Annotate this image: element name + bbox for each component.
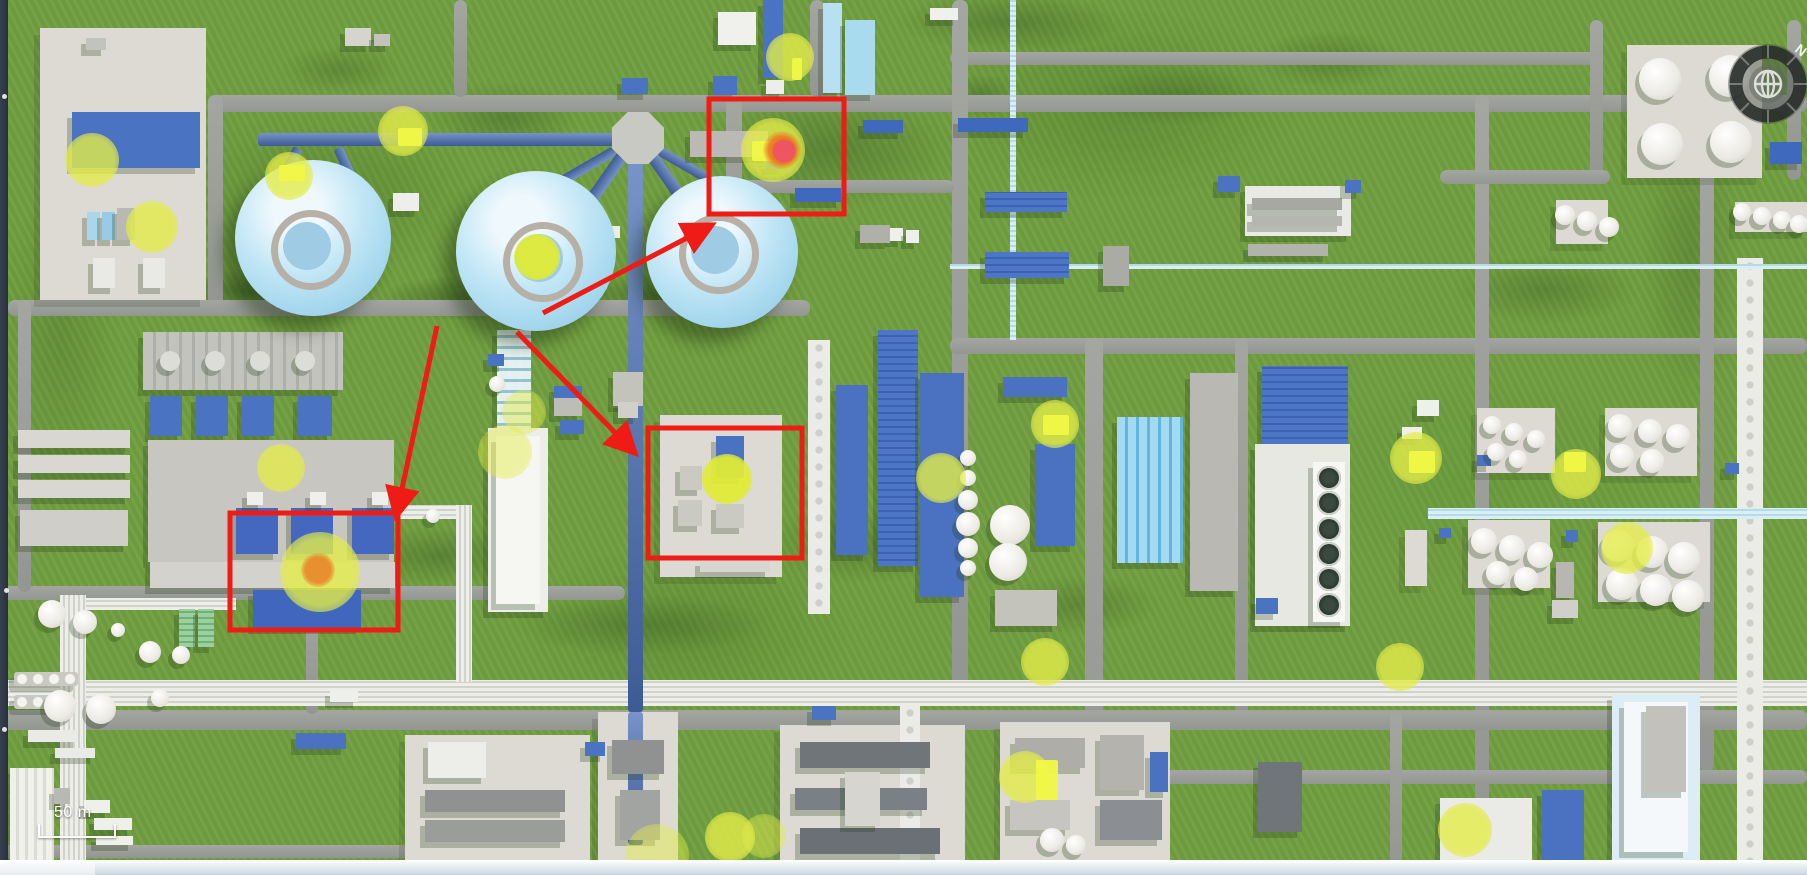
storage-tank — [1668, 542, 1700, 574]
storage-tank — [1555, 205, 1575, 225]
particle-dot — [2, 727, 7, 732]
building — [150, 396, 182, 436]
road — [1590, 20, 1603, 182]
building — [863, 120, 903, 133]
left-edge-panel — [0, 0, 8, 875]
storage-tank — [1066, 835, 1086, 855]
building — [247, 492, 263, 505]
storage-tank — [958, 538, 978, 558]
storage-tank — [1483, 416, 1501, 434]
building — [985, 192, 1067, 212]
storage-tank — [250, 351, 270, 371]
storage-tank — [1753, 207, 1771, 225]
event-marker[interactable] — [766, 33, 814, 81]
storage-tank — [160, 351, 180, 371]
building — [87, 212, 100, 240]
building — [554, 398, 582, 416]
pipe — [258, 133, 638, 146]
building — [18, 480, 130, 498]
building — [860, 225, 890, 243]
storage-tank — [1666, 424, 1690, 448]
window-bottom-bar — [0, 860, 1807, 875]
highlighted-asset — [1564, 452, 1586, 472]
pipe-rack — [456, 505, 472, 682]
building — [766, 80, 784, 94]
event-marker[interactable] — [742, 814, 786, 858]
building — [1556, 562, 1574, 598]
building — [845, 772, 880, 826]
building — [1566, 530, 1578, 542]
storage-tank — [205, 351, 225, 371]
particle-dot — [4, 588, 9, 593]
storage-tank — [73, 610, 97, 634]
event-marker[interactable] — [126, 201, 178, 253]
building — [1770, 142, 1802, 164]
building — [716, 504, 744, 528]
app-window: 50 m N — [0, 0, 1807, 875]
storage-tank — [1773, 211, 1791, 229]
building — [1150, 752, 1168, 792]
pipe — [628, 160, 643, 712]
highlighted-asset — [398, 128, 422, 146]
storage-tank — [489, 376, 505, 392]
pipe-rack — [0, 680, 1807, 706]
storage-tank — [1638, 419, 1662, 443]
building — [1417, 400, 1439, 416]
road — [208, 95, 1807, 112]
clarifier — [1117, 417, 1183, 563]
highlighted-asset — [1043, 415, 1069, 435]
event-marker[interactable] — [1438, 803, 1492, 857]
storage-tank — [1040, 828, 1064, 852]
storage-tank — [1527, 542, 1553, 568]
building — [678, 500, 702, 526]
storage-tank — [1509, 450, 1527, 468]
building — [1552, 600, 1578, 618]
storage-tank — [139, 641, 161, 663]
storage-tank — [1487, 443, 1505, 461]
event-marker[interactable] — [916, 453, 966, 503]
building — [585, 742, 605, 756]
storage-tank — [1790, 215, 1807, 233]
event-marker[interactable] — [702, 454, 752, 504]
building — [612, 740, 664, 774]
storage-tank — [1672, 580, 1704, 612]
storage-tank — [1610, 444, 1634, 468]
road — [1475, 95, 1489, 875]
building — [800, 742, 930, 768]
building — [1100, 800, 1162, 840]
event-marker[interactable] — [1021, 638, 1069, 686]
building — [1646, 706, 1686, 792]
building — [198, 609, 214, 647]
storage-tank — [1640, 449, 1664, 473]
fan-icon — [1317, 466, 1341, 490]
building — [196, 396, 228, 436]
building — [700, 560, 770, 572]
building — [14, 672, 78, 686]
building — [18, 430, 130, 448]
storage-tank — [1733, 203, 1751, 221]
event-marker[interactable] — [514, 234, 560, 280]
building — [236, 508, 278, 554]
storage-tank — [295, 351, 315, 371]
building — [330, 690, 358, 702]
event-marker[interactable] — [478, 425, 532, 479]
map-scale-bar: 50 m — [38, 804, 158, 838]
storage-tank — [111, 623, 125, 637]
building — [425, 820, 565, 842]
building — [718, 12, 756, 45]
fan-icon — [1317, 593, 1341, 617]
event-marker[interactable] — [65, 133, 119, 187]
pipe-rack — [1010, 0, 1016, 340]
building — [1035, 444, 1075, 546]
fan-icon — [1317, 517, 1341, 541]
storage-tank — [44, 690, 76, 722]
storage-tank — [989, 543, 1027, 581]
building — [54, 788, 70, 804]
building — [1103, 246, 1129, 286]
cooling-tower — [823, 3, 842, 93]
building — [20, 510, 128, 546]
highlighted-asset — [792, 58, 802, 80]
storage-tank — [1505, 423, 1523, 441]
building — [622, 78, 648, 94]
building — [1725, 463, 1739, 474]
storage-tank — [956, 512, 980, 536]
building — [102, 212, 115, 240]
building — [1190, 373, 1238, 591]
building — [1252, 216, 1342, 226]
sphere-dome-vent — [283, 222, 331, 270]
building — [554, 386, 582, 398]
building — [1010, 800, 1070, 830]
building — [906, 230, 919, 243]
road — [454, 0, 467, 97]
concrete-pad — [1405, 530, 1427, 586]
storage-tank — [1577, 211, 1597, 231]
fan-icon — [1317, 491, 1341, 515]
fan-icon — [1317, 567, 1341, 591]
building — [393, 193, 419, 211]
sphere-dome-vent — [691, 226, 739, 274]
building — [1258, 762, 1302, 832]
storage-tank — [1499, 535, 1525, 561]
storage-tank — [38, 600, 66, 628]
storage-tank — [1486, 561, 1510, 585]
building — [1345, 180, 1361, 193]
building — [680, 466, 702, 490]
building — [795, 788, 850, 810]
fan-icon — [1317, 542, 1341, 566]
building — [836, 385, 868, 555]
building — [374, 34, 390, 46]
road — [1440, 170, 1610, 184]
building — [795, 188, 841, 202]
pipe-rack — [1737, 258, 1763, 875]
pipe-rack — [808, 340, 830, 614]
pipe-rack — [1428, 508, 1807, 519]
building — [560, 420, 584, 434]
pipe-rack — [950, 264, 1807, 269]
highlighted-asset — [1409, 451, 1435, 473]
building — [1003, 377, 1067, 397]
storage-tank — [1641, 123, 1683, 165]
building — [345, 28, 371, 46]
building — [1252, 198, 1342, 210]
alarm-core — [773, 140, 795, 162]
storage-tank — [990, 505, 1030, 545]
vegetation-shadow — [280, 45, 400, 95]
building — [18, 455, 130, 473]
storage-tank — [1599, 217, 1619, 237]
building — [28, 730, 78, 742]
road — [950, 338, 1807, 354]
building — [242, 396, 274, 436]
storage-tank — [960, 450, 976, 466]
building — [713, 76, 737, 95]
building — [352, 508, 394, 554]
event-marker[interactable] — [257, 444, 305, 492]
storage-tank — [1608, 414, 1632, 438]
building — [1248, 244, 1328, 256]
road — [208, 95, 223, 307]
building — [488, 354, 504, 366]
building — [890, 228, 903, 241]
building — [296, 733, 346, 749]
building — [800, 828, 940, 854]
building — [1256, 598, 1278, 614]
building — [310, 492, 326, 505]
storage-tank — [1527, 430, 1545, 448]
building — [93, 258, 115, 288]
alarm-core — [301, 553, 335, 587]
building — [1218, 176, 1240, 192]
particle-dot — [2, 94, 7, 99]
cooling-tower — [845, 20, 875, 95]
substation — [1245, 186, 1351, 236]
storage-tank — [1639, 58, 1681, 100]
road — [950, 52, 1595, 65]
building — [1100, 735, 1144, 790]
storage-tank — [1640, 574, 1672, 606]
storage-tank — [1514, 567, 1538, 591]
highlighted-asset — [279, 165, 305, 181]
scale-bracket — [38, 824, 116, 838]
compass-widget[interactable]: N — [1722, 34, 1807, 134]
storage-tank — [151, 689, 169, 707]
building — [613, 372, 643, 406]
plant-map[interactable] — [0, 0, 1807, 875]
building — [86, 38, 106, 50]
building — [1262, 366, 1348, 444]
road — [1700, 95, 1714, 772]
road — [1390, 712, 1402, 875]
globe-icon — [1755, 71, 1781, 97]
building — [55, 748, 95, 758]
storage-tank — [426, 509, 440, 523]
building — [930, 8, 958, 20]
storage-tank — [1471, 528, 1497, 554]
process-line — [878, 330, 918, 566]
building — [958, 118, 1028, 132]
highlighted-asset — [1036, 760, 1058, 800]
building — [143, 258, 165, 288]
storage-tank — [960, 560, 976, 576]
building — [425, 790, 565, 812]
building — [812, 706, 836, 720]
storage-tank — [172, 646, 190, 664]
building — [618, 402, 638, 418]
building — [985, 252, 1069, 278]
event-marker[interactable] — [1376, 643, 1424, 691]
building — [995, 590, 1057, 626]
building — [298, 396, 332, 436]
storage-tank — [86, 694, 116, 724]
scale-label: 50 m — [54, 804, 158, 822]
building — [1439, 528, 1451, 538]
building — [372, 492, 388, 505]
building — [428, 742, 486, 778]
fan-bank — [1313, 462, 1345, 622]
building — [179, 609, 195, 647]
event-marker[interactable] — [1601, 522, 1653, 574]
